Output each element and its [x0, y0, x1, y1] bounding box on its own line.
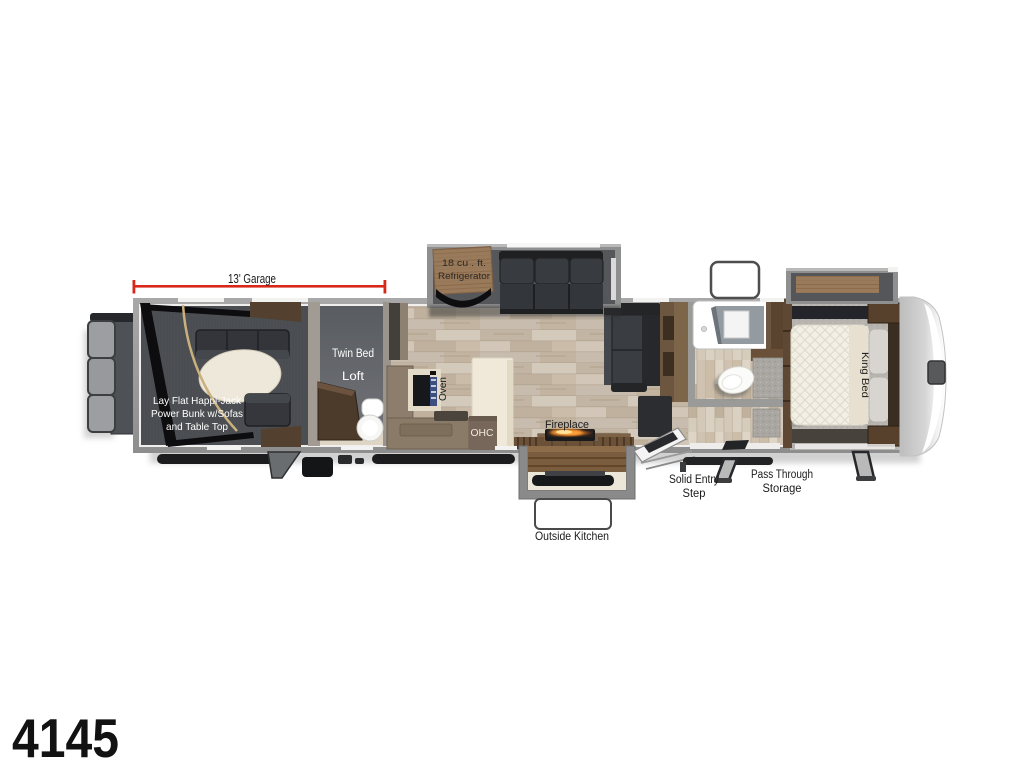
svg-text:Fireplace: Fireplace: [545, 419, 589, 431]
svg-text:Step: Step: [683, 488, 706, 500]
svg-text:4145: 4145: [12, 707, 119, 768]
svg-text:18 cu . ft.: 18 cu . ft.: [442, 258, 486, 269]
svg-text:Pass Through: Pass Through: [751, 469, 813, 481]
svg-text:Twin Bed: Twin Bed: [332, 348, 374, 360]
svg-text:Refrigerator: Refrigerator: [438, 271, 490, 282]
svg-text:and Table Top: and Table Top: [166, 421, 228, 433]
svg-text:Oven: Oven: [437, 377, 449, 401]
svg-text:OHC: OHC: [471, 427, 494, 439]
svg-text:Outside Kitchen: Outside Kitchen: [535, 529, 609, 543]
svg-text:Lay Flat Happi-Jack: Lay Flat Happi-Jack: [153, 395, 242, 407]
svg-text:Loft: Loft: [342, 371, 365, 383]
svg-text:Power Bunk w/Sofas: Power Bunk w/Sofas: [151, 408, 243, 420]
svg-text:Solid Entry: Solid Entry: [669, 474, 719, 486]
svg-text:13' Garage: 13' Garage: [228, 272, 276, 286]
svg-text:Storage: Storage: [763, 483, 802, 495]
